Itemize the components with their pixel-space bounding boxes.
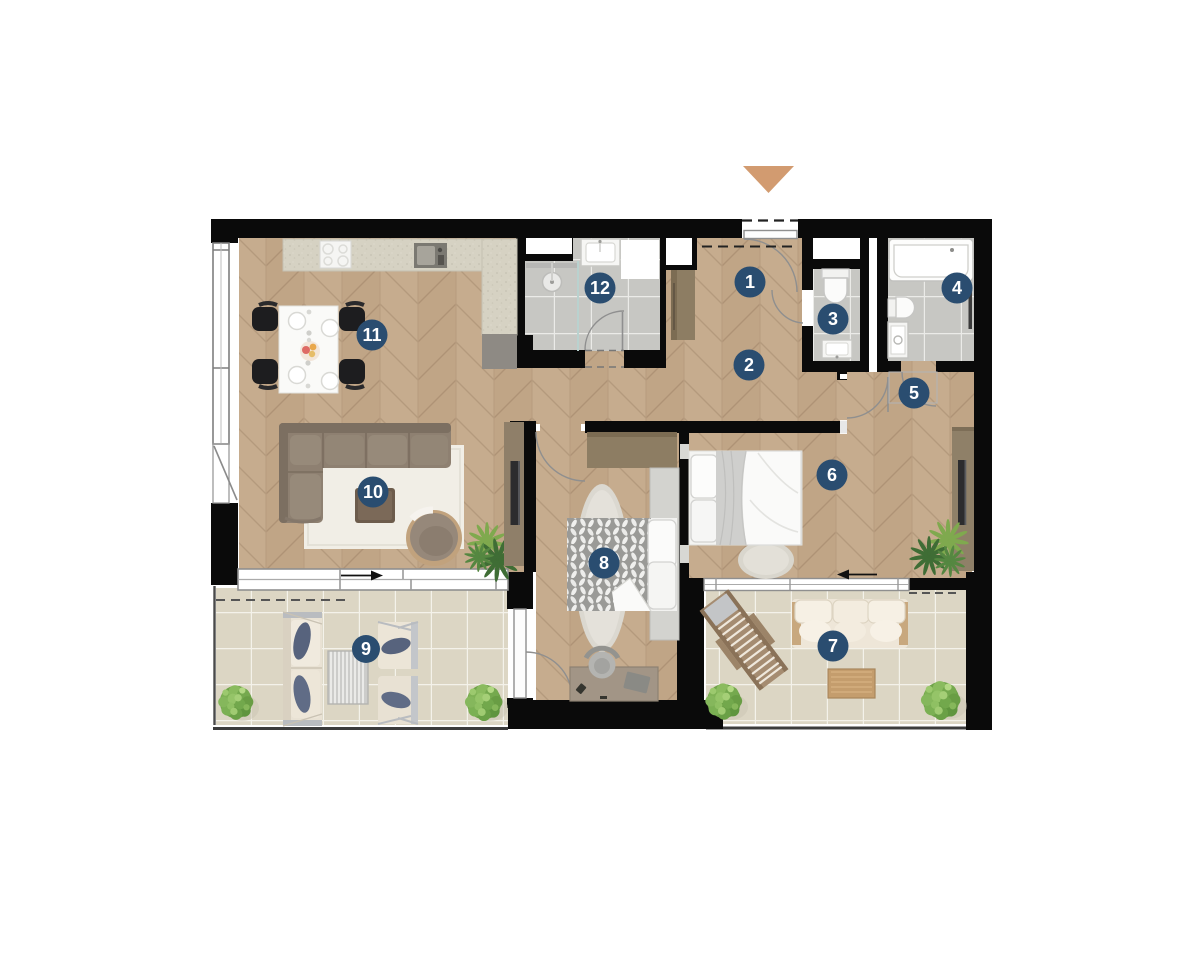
svg-text:4: 4 (952, 278, 962, 298)
svg-text:6: 6 (827, 465, 837, 485)
svg-text:3: 3 (828, 309, 838, 329)
svg-text:12: 12 (590, 278, 610, 298)
svg-text:1: 1 (745, 272, 755, 292)
svg-text:2: 2 (744, 355, 754, 375)
svg-text:9: 9 (361, 639, 371, 659)
svg-text:10: 10 (363, 482, 383, 502)
svg-text:8: 8 (599, 553, 609, 573)
svg-text:7: 7 (828, 636, 838, 656)
svg-text:11: 11 (362, 325, 381, 345)
svg-text:5: 5 (909, 383, 919, 403)
